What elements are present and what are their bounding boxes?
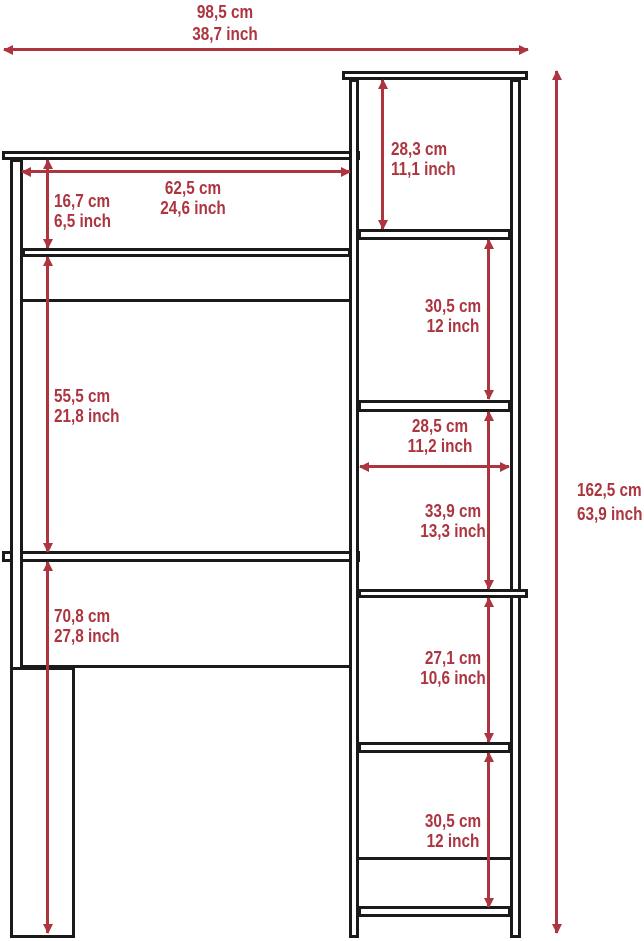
top-cubby-height-arrow (381, 80, 384, 229)
desk-left-leg (10, 667, 75, 938)
bookcase-shelf-overhang (358, 589, 528, 598)
hutch-back-rail (22, 299, 351, 302)
dim-label-upper-shelf-gap: 30,5 cm 12 inch (402, 296, 504, 336)
dim-label-hutch-interior-width: 62,5 cm 24,6 inch (125, 178, 261, 218)
dim-label-below-desk-shelf-gap: 27,1 cm 10,6 inch (402, 648, 504, 688)
dim-value-inch: 27,8 inch (54, 626, 119, 646)
dim-value-cm: 27,1 cm (402, 648, 504, 668)
dim-value-cm: 30,5 cm (402, 811, 504, 831)
dim-value-cm: 70,8 cm (54, 606, 119, 626)
dim-label-top-cubby-height: 28,3 cm 11,1 inch (391, 139, 456, 179)
dim-value-inch: 63,9 inch (577, 502, 642, 526)
dim-label-overall-width: 98,5 cm 38,7 inch (157, 1, 293, 45)
dim-value-inch: 21,8 inch (54, 406, 119, 426)
dim-value-cm: 162,5 cm (577, 478, 642, 502)
dim-value-cm: 98,5 cm (157, 1, 293, 23)
dim-value-cm: 55,5 cm (54, 386, 119, 406)
dim-value-cm: 16,7 cm (54, 191, 111, 211)
dim-value-inch: 10,6 inch (402, 668, 504, 688)
dim-value-cm: 33,9 cm (402, 501, 504, 521)
hutch-cubby-height-arrow (46, 160, 49, 248)
dim-value-inch: 6,5 inch (54, 211, 111, 231)
bookcase-top-cap (342, 71, 528, 80)
dim-value-inch: 12 inch (402, 316, 504, 336)
desktop-height-arrow (46, 562, 49, 933)
dim-value-inch: 13,3 inch (402, 521, 504, 541)
dim-value-cm: 28,3 cm (391, 139, 456, 159)
bookcase-right-side-panel (510, 79, 521, 938)
dim-value-cm: 62,5 cm (125, 178, 261, 198)
dim-value-inch: 11,1 inch (391, 159, 456, 179)
dim-label-shelf-interior-width: 28,5 cm 11,2 inch (389, 416, 491, 456)
dim-label-hutch-cubby-height: 16,7 cm 6,5 inch (54, 191, 111, 231)
dim-label-desktop-height: 70,8 cm 27,8 inch (54, 606, 119, 646)
hutch-bottom-shelf (22, 248, 351, 257)
dim-label-hutch-to-desktop: 55,5 cm 21,8 inch (54, 386, 119, 426)
hutch-interior-width-arrow (22, 170, 350, 173)
desktop-surface (2, 551, 360, 562)
dim-value-cm: 28,5 cm (389, 416, 491, 436)
bookcase-left-side-panel (349, 79, 359, 938)
hutch-to-desktop-arrow (46, 257, 49, 552)
dim-value-inch: 38,7 inch (157, 23, 293, 45)
dim-label-middle-shelf-gap: 33,9 cm 13,3 inch (402, 501, 504, 541)
dim-label-overall-height: 162,5 cm 63,9 inch (577, 478, 642, 526)
overall-height-arrow (555, 71, 558, 933)
hutch-top-board (2, 151, 360, 160)
furniture-dimension-diagram: 98,5 cm 38,7 inch 28,3 cm 11,1 inch 62,5… (0, 0, 644, 941)
overall-width-arrow (4, 48, 528, 51)
dim-value-inch: 11,2 inch (389, 436, 491, 456)
dim-value-cm: 30,5 cm (402, 296, 504, 316)
dim-label-bottom-shelf-gap: 30,5 cm 12 inch (402, 811, 504, 851)
dim-value-inch: 12 inch (402, 831, 504, 851)
dim-value-inch: 24,6 inch (125, 198, 261, 218)
